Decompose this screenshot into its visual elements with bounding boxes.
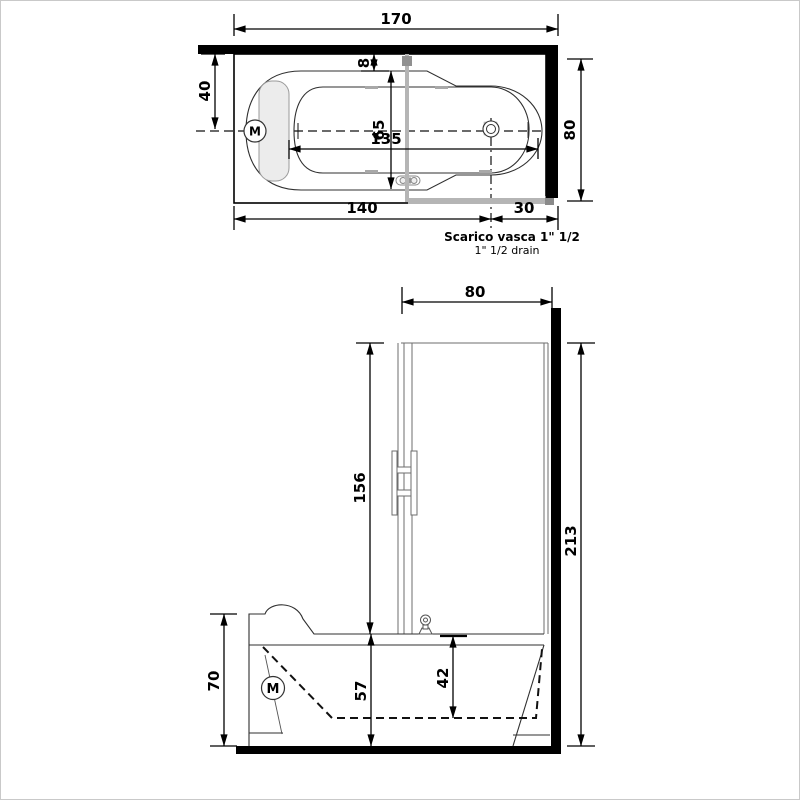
dim-8-label: 8 bbox=[355, 58, 373, 68]
plan-faucet-knob bbox=[411, 178, 417, 184]
plan-wall-top bbox=[198, 45, 558, 54]
dim-30-label: 30 bbox=[514, 199, 535, 217]
handle-connector bbox=[396, 467, 411, 473]
drawing-page: M 170 40 8 65 135 80 bbox=[0, 0, 800, 800]
dim-40-label: 40 bbox=[196, 81, 214, 102]
plan-jet bbox=[365, 170, 378, 173]
plan-wall-right bbox=[546, 45, 558, 198]
plan-jet bbox=[365, 86, 378, 89]
front-faucet-knob bbox=[421, 615, 431, 625]
dim-57-label: 57 bbox=[352, 681, 370, 702]
plan-jet bbox=[435, 86, 448, 89]
front-view: M 80 156 57 42 70 bbox=[205, 283, 595, 754]
dim-170-label: 170 bbox=[380, 10, 411, 28]
plan-motor-label: M bbox=[249, 125, 261, 139]
front-faucet-stem bbox=[423, 625, 428, 629]
front-tub-hidden-basin-profile bbox=[263, 647, 542, 718]
front-motor-label: M bbox=[267, 682, 280, 697]
dim-140-label: 140 bbox=[346, 199, 377, 217]
dim-42-label: 42 bbox=[434, 668, 452, 689]
technical-drawing-canvas: M 170 40 8 65 135 80 bbox=[1, 1, 800, 800]
front-tub-right-slope bbox=[513, 645, 544, 746]
top-view: M 170 40 8 65 135 80 bbox=[196, 10, 593, 257]
dim-156-label: 156 bbox=[351, 472, 369, 503]
plan-jet bbox=[479, 170, 492, 173]
handle-bar bbox=[392, 451, 397, 515]
dim-213-label: 213 bbox=[562, 525, 580, 556]
drain-note-english: 1" 1/2 drain bbox=[474, 244, 539, 257]
handle-bar bbox=[411, 451, 417, 515]
handle-connector bbox=[396, 490, 411, 496]
front-faucet bbox=[419, 615, 432, 634]
front-wall-right bbox=[551, 308, 561, 753]
dim-70-label: 70 bbox=[205, 671, 223, 692]
dim-80p-label: 80 bbox=[561, 120, 579, 141]
front-tub-outline bbox=[249, 605, 544, 746]
dim-135-label: 135 bbox=[370, 130, 401, 148]
plan-glass-door-handle bbox=[402, 56, 412, 66]
drain-note-italian: Scarico vasca 1" 1/2 bbox=[444, 230, 580, 244]
plan-drain-outer bbox=[483, 121, 499, 137]
front-floor bbox=[236, 746, 561, 754]
dim-80f-label: 80 bbox=[465, 283, 486, 301]
plan-glass-door bbox=[405, 54, 409, 202]
